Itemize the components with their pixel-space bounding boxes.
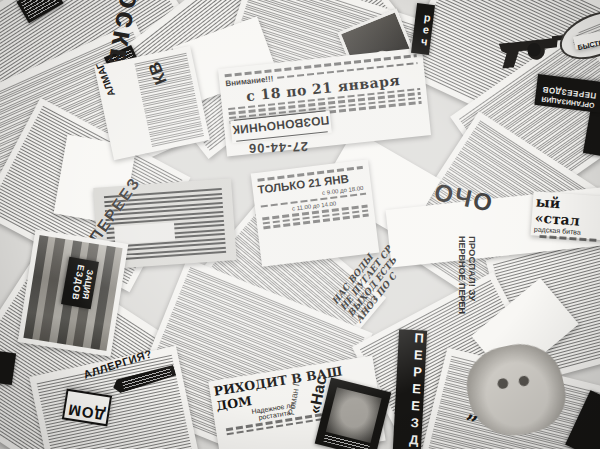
column-line-prospal: ПРОСПАЛ! ЗУ xyxy=(467,236,478,346)
scrap-almag-ad: КВ АЛМАГ xyxy=(94,46,210,160)
scrap-stalingrad-headline: ый «стал радская битва xyxy=(531,191,600,240)
small-photo-image xyxy=(326,387,382,443)
vertical-column-prospal: ПРОСПАЛ! ЗУ НЕРВНОЕ ПЕРЕН xyxy=(452,236,478,346)
label-dom: ДОМ xyxy=(66,401,106,424)
column-line-nervnoe: НЕРВНОЕ ПЕРЕН xyxy=(457,236,467,346)
phone-number: 27-44-06 xyxy=(248,139,309,156)
newspaper-collage-photo: осква КВ АЛМАГ Внимание!!! с 18 по 21 ян… xyxy=(0,0,600,449)
scrap-tolko-ad: ТОЛЬКО 21 ЯНВ с 9.00 до 18.00 с 11.00 до… xyxy=(251,159,380,267)
headline-stal: ый «стал xyxy=(534,194,600,231)
